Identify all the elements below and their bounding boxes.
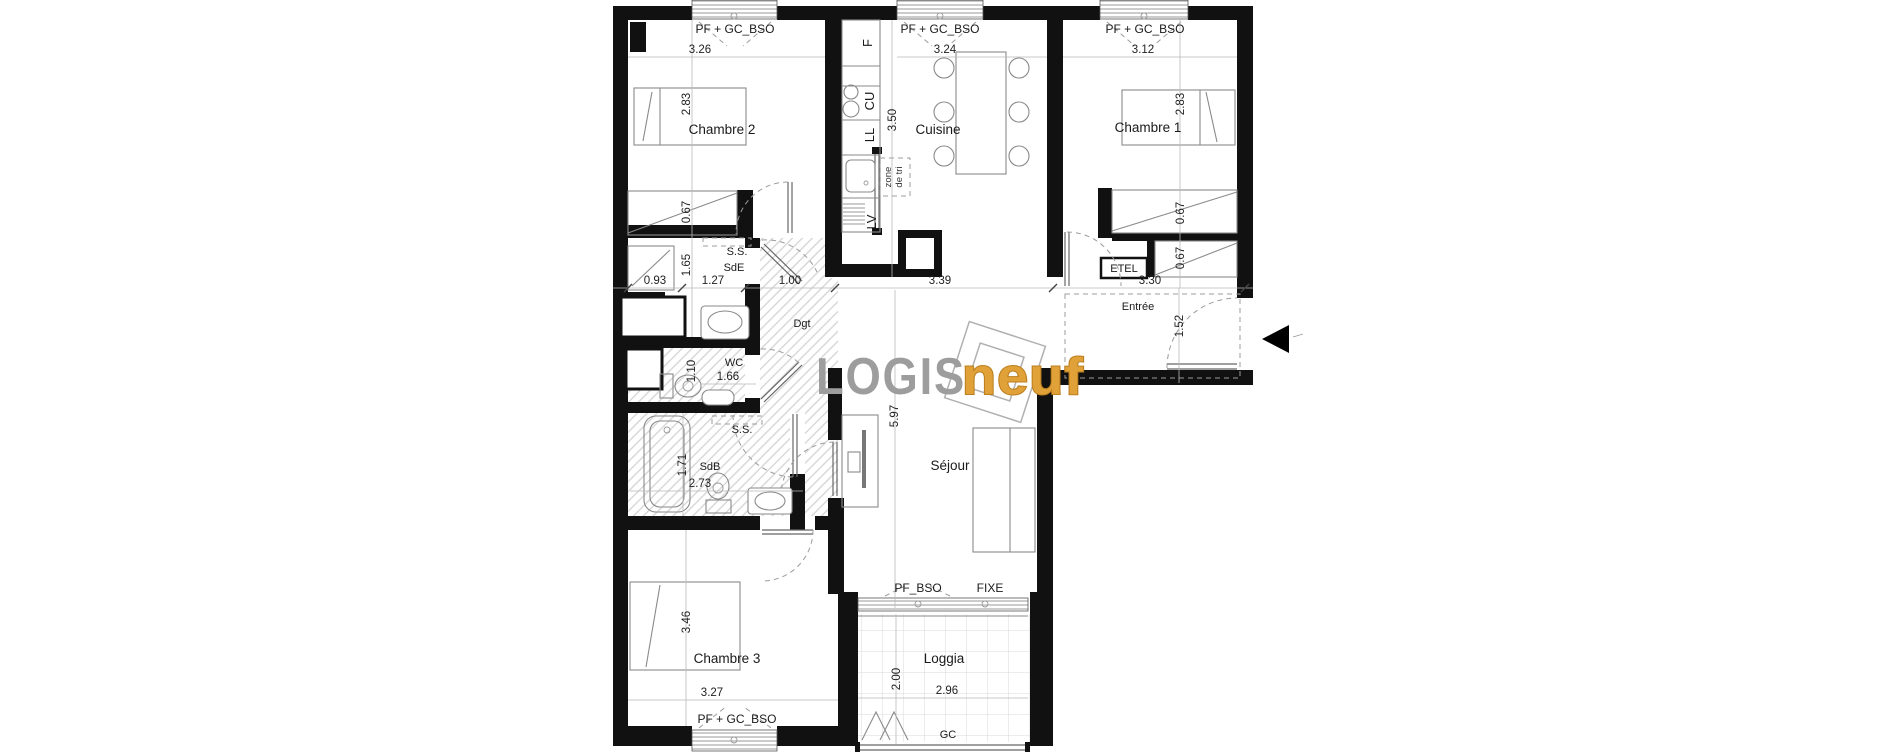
towel-dryer-sde bbox=[703, 238, 751, 246]
window-top-2 bbox=[897, 0, 983, 19]
window-sejour bbox=[858, 598, 1028, 611]
window-label-top-1: PF + GC_BSO bbox=[695, 22, 774, 36]
column-ch2 bbox=[630, 22, 646, 52]
dim-100: 1.00 bbox=[779, 275, 801, 287]
room-label-cuisine: Cuisine bbox=[915, 122, 960, 137]
room-label-etel: ETEL bbox=[1110, 263, 1138, 275]
dim-sejour-height: 5.97 bbox=[889, 405, 901, 427]
wall-sdb-bottom-2 bbox=[815, 516, 832, 530]
dim-330: 3.30 bbox=[1139, 275, 1161, 287]
wall-sdb-bottom-1 bbox=[613, 516, 760, 530]
wall-bottom-1 bbox=[613, 726, 692, 746]
wc-hand-basin bbox=[702, 390, 734, 405]
wall-ch3-loggia bbox=[838, 592, 858, 746]
wall-cuisine-ch1 bbox=[1047, 20, 1063, 277]
wall-wc-jamb-top bbox=[745, 345, 760, 355]
wall-top-2 bbox=[777, 6, 897, 20]
label-zone-2: de tri bbox=[894, 166, 905, 187]
room-label-chambre3: Chambre 3 bbox=[694, 651, 761, 666]
label-gc: GC bbox=[940, 729, 957, 741]
dim-ch1-closet1: 0.67 bbox=[1175, 202, 1187, 224]
window-label-sejour-right: FIXE bbox=[977, 581, 1004, 595]
wall-top-3 bbox=[983, 6, 1100, 20]
appliance-label-washer: LL bbox=[862, 128, 877, 142]
room-label-sde-ss: S.S. bbox=[727, 246, 748, 258]
floor-plan: 3.26 2.83 0.67 3.24 3.50 3.12 2.83 0.67 … bbox=[0, 0, 1900, 754]
wall-kitchen-left bbox=[825, 20, 842, 264]
entrance-indicator bbox=[1262, 325, 1303, 353]
room-label-chambre1: Chambre 1 bbox=[1115, 120, 1182, 135]
window-label-sejour-left: PF_BSO bbox=[894, 581, 941, 595]
appliance-label-hob: CU bbox=[862, 92, 877, 111]
room-label-sejour: Séjour bbox=[930, 458, 970, 473]
chair bbox=[1009, 58, 1029, 78]
window-top-1 bbox=[692, 0, 777, 19]
dim-loggia-width: 2.96 bbox=[936, 685, 958, 697]
dim-127: 1.27 bbox=[702, 275, 724, 287]
dim-ch2-width: 3.26 bbox=[689, 44, 711, 56]
dim-entree-height: 1.52 bbox=[1174, 315, 1186, 337]
wall-ch2-closet-h bbox=[613, 225, 753, 238]
kitchen-sink bbox=[846, 160, 875, 192]
chair bbox=[934, 146, 954, 166]
wall-sejour-left-low bbox=[828, 498, 844, 594]
brand-logis: LOGIS bbox=[816, 348, 966, 406]
floor-hatching bbox=[628, 238, 1030, 742]
window-chambre3 bbox=[692, 730, 777, 751]
room-label-entree: Entrée bbox=[1122, 301, 1154, 313]
entrance-arrow-icon bbox=[1262, 325, 1289, 353]
dim-ch3-width: 3.27 bbox=[701, 687, 723, 699]
dim-sdb-height: 1.71 bbox=[677, 454, 689, 476]
dim-ch1-width: 3.12 bbox=[1132, 44, 1154, 56]
dim-339: 3.39 bbox=[929, 275, 951, 287]
room-label-sde: SdE bbox=[724, 262, 745, 274]
dim-wc-width: 1.66 bbox=[717, 371, 739, 383]
window-label-top-2: PF + GC_BSO bbox=[900, 22, 979, 36]
room-label-chambre2: Chambre 2 bbox=[689, 122, 756, 137]
room-label-sdb-ss: S.S. bbox=[732, 424, 753, 436]
chair bbox=[1009, 146, 1029, 166]
chair bbox=[1009, 102, 1029, 122]
dining-table bbox=[956, 52, 1006, 174]
dim-ch1-height: 2.83 bbox=[1175, 93, 1187, 115]
sofa bbox=[973, 428, 1035, 552]
dim-wc-height: 1.10 bbox=[686, 360, 698, 382]
window-top-3 bbox=[1100, 0, 1188, 19]
wall-right bbox=[1237, 6, 1253, 298]
label-zone-1: zone bbox=[883, 167, 894, 188]
wall-wc-jamb-bot bbox=[745, 398, 760, 413]
storage-box-2 bbox=[626, 349, 662, 389]
appliance-label-fridge: F bbox=[860, 39, 875, 47]
brand-neuf: neuf bbox=[962, 348, 1084, 406]
chair bbox=[934, 102, 954, 122]
loggia-tiles bbox=[858, 614, 1030, 742]
window-label-chambre3: PF + GC_BSO bbox=[697, 712, 776, 726]
dim-ch2-height: 2.83 bbox=[681, 93, 693, 115]
dim-ch3-height: 3.46 bbox=[681, 611, 693, 633]
window-label-top-3: PF + GC_BSO bbox=[1105, 22, 1184, 36]
dim-093: 0.93 bbox=[644, 275, 666, 287]
room-label-dgt: Dgt bbox=[793, 318, 810, 330]
kitchen-counter bbox=[842, 20, 880, 232]
storage-box-1 bbox=[621, 297, 685, 337]
appliance-label-dishwasher: LV bbox=[864, 214, 879, 229]
dim-sdb-width: 2.73 bbox=[689, 478, 711, 490]
dim-loggia-height: 2.00 bbox=[891, 668, 903, 690]
closet-divider bbox=[1112, 233, 1237, 241]
closet-jamb-1 bbox=[1098, 188, 1112, 238]
dim-cuisine-width: 3.24 bbox=[934, 44, 957, 56]
dim-ch2-closet: 0.67 bbox=[681, 201, 693, 223]
tv-screen bbox=[862, 430, 866, 488]
dim-cuisine-height: 3.50 bbox=[887, 109, 899, 131]
shaft-void bbox=[906, 238, 934, 269]
hob-burner-1 bbox=[844, 85, 858, 99]
hob-burner-2 bbox=[843, 101, 859, 117]
dim-ch1-closet2: 0.67 bbox=[1175, 247, 1187, 269]
room-label-loggia: Loggia bbox=[924, 651, 965, 666]
chair bbox=[934, 58, 954, 78]
room-label-sdb: SdB bbox=[700, 461, 721, 473]
wall-loggia-right bbox=[1030, 592, 1053, 746]
dim-sde-height: 1.65 bbox=[681, 254, 693, 276]
room-label-wc: WC bbox=[725, 357, 743, 369]
